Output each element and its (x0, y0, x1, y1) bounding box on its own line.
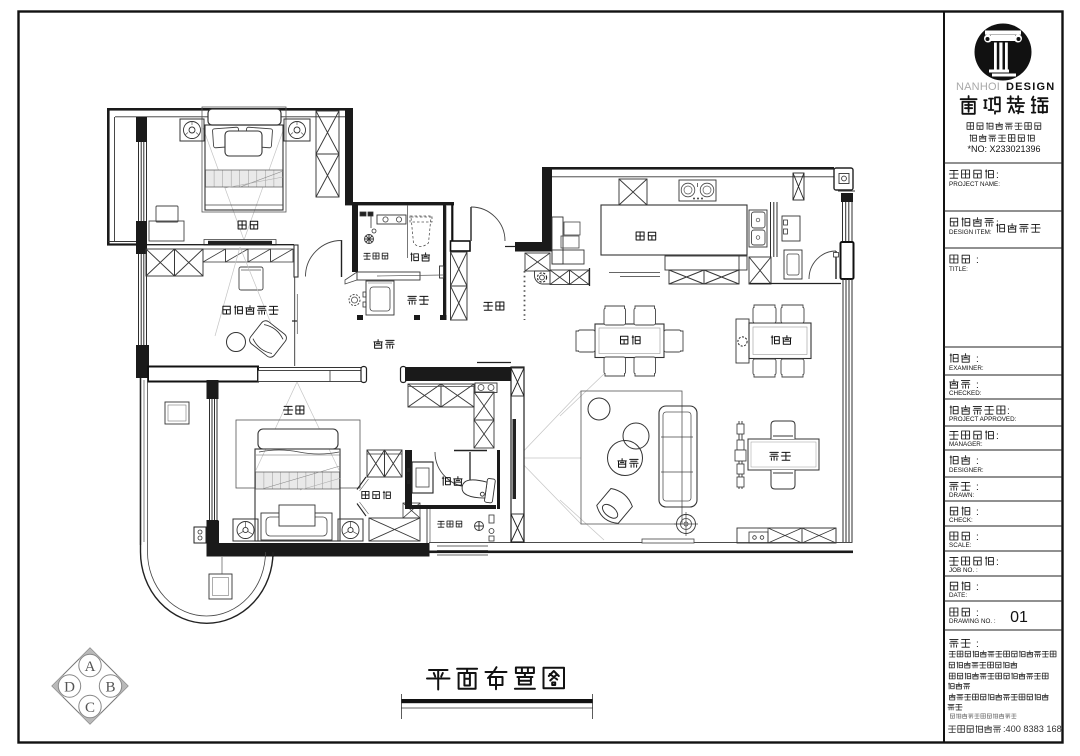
svg-text:PROJECT NAME:: PROJECT NAME: (949, 181, 1000, 188)
svg-text::: : (976, 608, 979, 619)
svg-text:JOB NO. :: JOB NO. : (949, 567, 978, 574)
svg-text::: : (996, 170, 999, 181)
svg-text:DATE:: DATE: (949, 592, 967, 599)
svg-text::: : (976, 255, 979, 266)
svg-text:DESIGNER:: DESIGNER: (949, 467, 984, 474)
svg-text:PROJECT APPROVED:: PROJECT APPROVED: (949, 416, 1017, 423)
svg-text::: : (976, 354, 979, 365)
svg-text:DRAWN:: DRAWN: (949, 492, 975, 499)
svg-text:DESIGN ITEM:: DESIGN ITEM: (949, 229, 992, 236)
svg-text:DRAWING NO. :: DRAWING NO. : (949, 618, 996, 625)
svg-text:CHECKED:: CHECKED: (949, 390, 982, 397)
svg-text:SCALE:: SCALE: (949, 542, 972, 549)
svg-text:D: D (64, 680, 75, 696)
svg-text::: : (976, 639, 979, 650)
svg-text::: : (996, 431, 999, 442)
svg-text::: : (996, 557, 999, 568)
svg-text:B: B (105, 680, 115, 696)
svg-text:CHECK:: CHECK: (949, 517, 973, 524)
svg-text::: : (976, 456, 979, 467)
svg-text:C: C (85, 700, 95, 716)
svg-text::400 8383 168: :400 8383 168 (1003, 724, 1062, 734)
svg-text:MANAGER:: MANAGER: (949, 441, 983, 448)
svg-text::: : (976, 532, 979, 543)
svg-text::: : (976, 482, 979, 493)
svg-text::: : (976, 582, 979, 593)
svg-text::: : (976, 507, 979, 518)
svg-text:*NO: X233021396: *NO: X233021396 (967, 144, 1040, 154)
svg-text:DESIGN: DESIGN (1006, 81, 1055, 93)
svg-text:NANHOI: NANHOI (956, 81, 1000, 93)
svg-text:EXAMINER:: EXAMINER: (949, 365, 984, 372)
svg-text::: : (976, 380, 979, 391)
svg-text:A: A (85, 659, 96, 675)
svg-text:TITLE:: TITLE: (949, 266, 968, 273)
svg-text::: : (1007, 406, 1010, 417)
svg-text:01: 01 (1010, 609, 1028, 626)
